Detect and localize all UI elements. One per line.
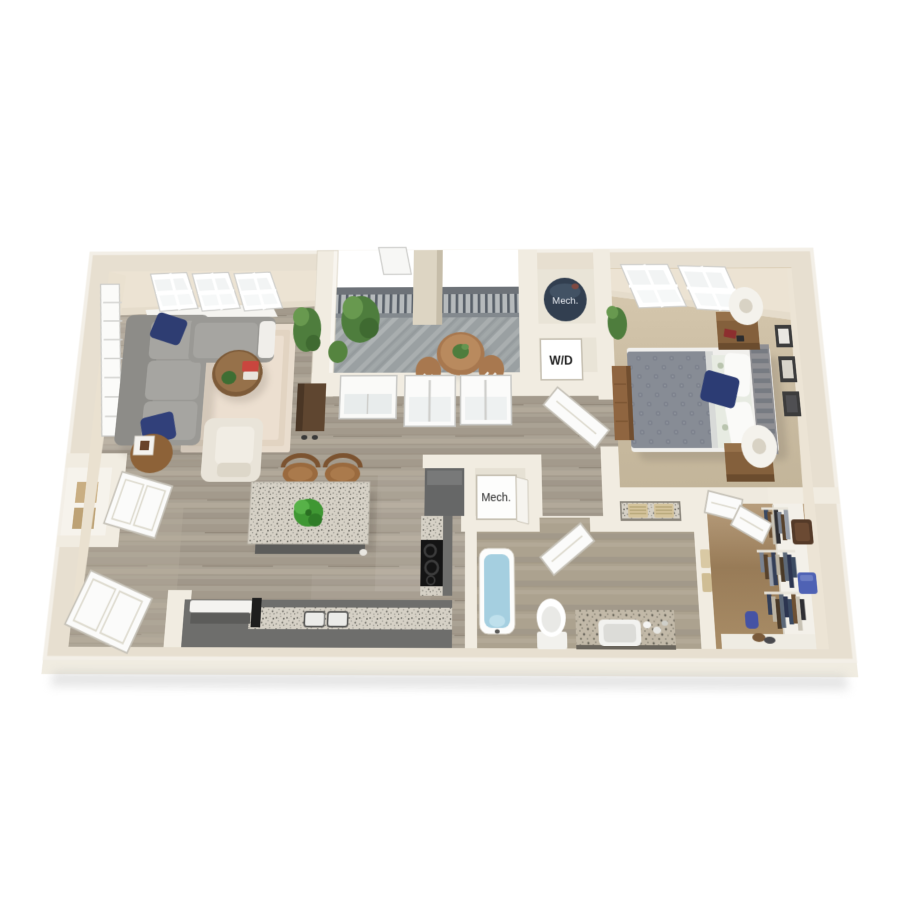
svg-text:Mech.: Mech. — [481, 492, 511, 505]
svg-text:W/D: W/D — [549, 355, 573, 368]
svg-text:Mech.: Mech. — [552, 295, 578, 306]
